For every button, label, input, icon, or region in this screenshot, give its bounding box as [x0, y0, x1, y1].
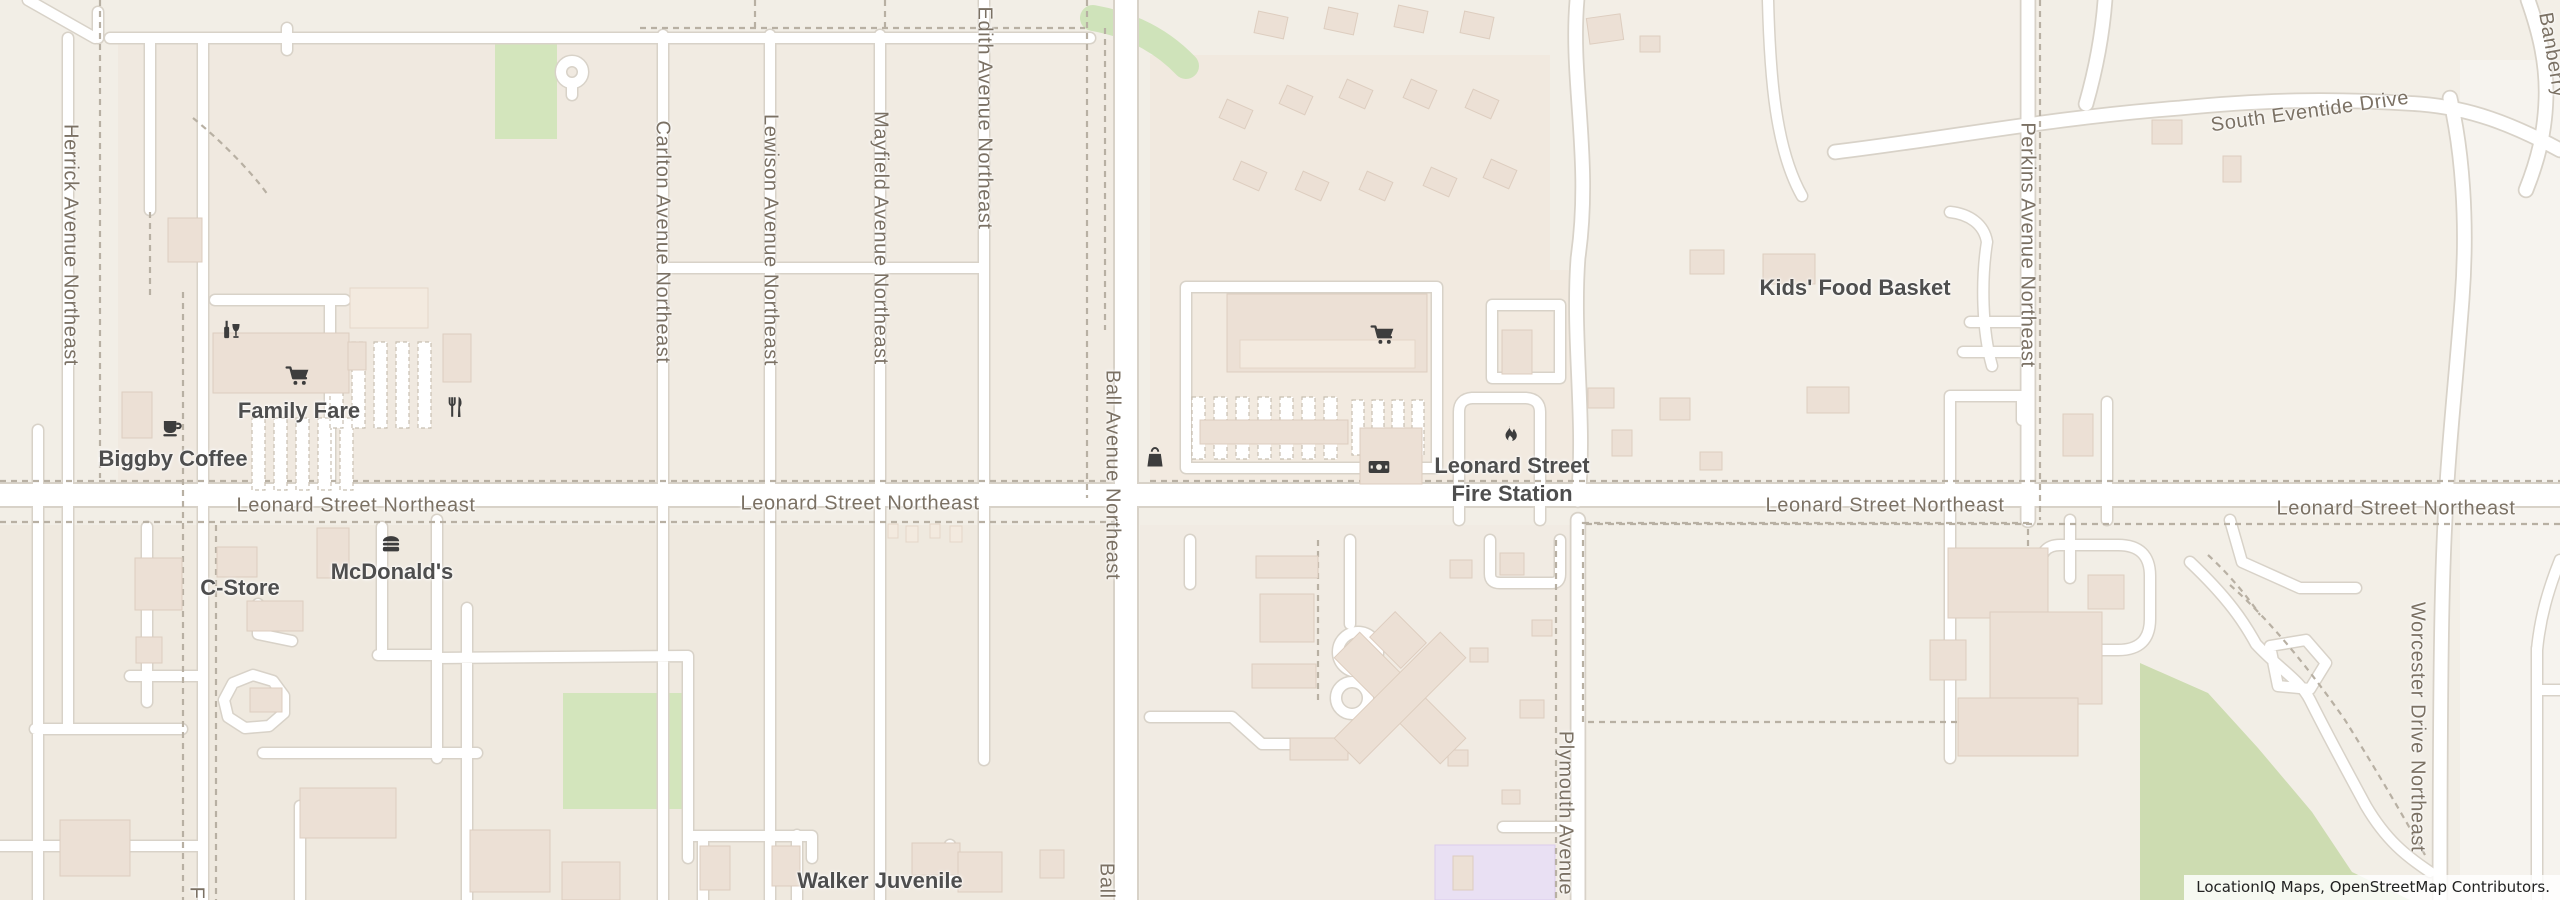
street-label-edith: Edith Avenue Northeast	[973, 7, 996, 230]
poi-label-c-store: C-Store	[200, 575, 279, 601]
wine-shop-icon	[217, 317, 243, 343]
street-label-leonard-4: Leonard Street Northeast	[2277, 498, 2516, 521]
street-label-carlton: Carlton Avenue Northeast	[651, 120, 674, 363]
poi-label-kids-food-basket: Kids' Food Basket	[1759, 275, 1950, 301]
atm-banknote-icon	[1366, 454, 1392, 480]
poi-label-fire-station-line2: Fire Station	[1451, 481, 1572, 507]
poi-label-mcdonalds: McDonald's	[331, 559, 454, 585]
street-label-leonard-2: Leonard Street Northeast	[741, 493, 980, 516]
street-label-perkins: Perkins Avenue Northeast	[2016, 122, 2039, 367]
street-label-ball-1: Ball Avenue Northeast	[1101, 370, 1124, 580]
street-label-ball-2: Ball Avenue Northeast	[1095, 863, 1118, 900]
street-label-leonard-1: Leonard Street Northeast	[237, 495, 476, 518]
map-geometry	[0, 0, 2560, 900]
fast-food-burger-icon	[378, 531, 404, 557]
cart-icon-bigbox	[1370, 323, 1396, 349]
cafe-icon	[159, 414, 185, 440]
street-label-mayfield: Mayfield Avenue Northeast	[869, 111, 892, 365]
street-label-f-partial: F	[185, 887, 208, 900]
cart-icon-family-fare	[285, 364, 311, 390]
poi-label-walker-juvenile: Walker Juvenile	[797, 868, 962, 894]
poi-label-family-fare: Family Fare	[238, 398, 360, 424]
fire-station-flame-icon	[1496, 423, 1522, 449]
map-canvas[interactable]: Herrick Avenue Northeast F Carlton Avenu…	[0, 0, 2560, 900]
street-label-herrick: Herrick Avenue Northeast	[59, 124, 82, 366]
poi-label-fire-station-line1: Leonard Street	[1434, 453, 1589, 479]
restaurant-icon	[442, 394, 468, 420]
street-label-leonard-3: Leonard Street Northeast	[1766, 495, 2005, 518]
street-label-lewison: Lewison Avenue Northeast	[759, 114, 782, 366]
street-label-plymouth: Plymouth Avenue	[1554, 731, 1577, 895]
shop-bag-icon	[1142, 445, 1168, 471]
map-attribution[interactable]: LocationIQ Maps, OpenStreetMap Contribut…	[2184, 875, 2560, 900]
street-label-worcester: Worcester Drive Northeast	[2406, 602, 2429, 852]
poi-label-biggby-coffee: Biggby Coffee	[98, 446, 247, 472]
